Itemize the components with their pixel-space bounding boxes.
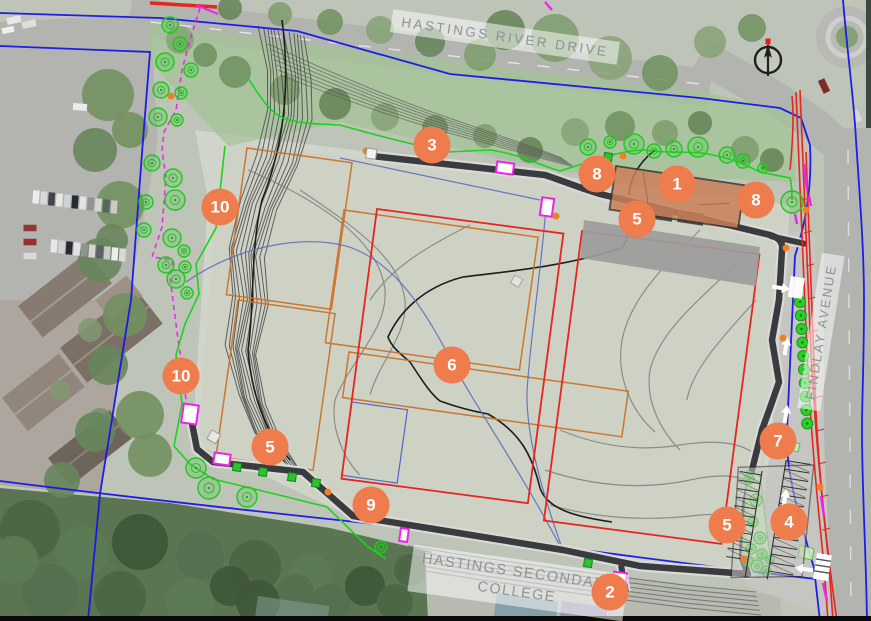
marker-2: 2 xyxy=(592,574,629,611)
marker-9: 9 xyxy=(353,487,390,524)
path-endcap xyxy=(366,148,377,159)
marker-1: 1 xyxy=(659,166,696,203)
image-edge-right xyxy=(866,0,871,128)
marker-5: 5 xyxy=(619,201,656,238)
marker-4: 4 xyxy=(771,504,808,541)
marker-8: 8 xyxy=(579,156,616,193)
marker-5: 5 xyxy=(252,429,289,466)
image-border-bottom xyxy=(0,616,871,621)
marker-10: 10 xyxy=(163,358,200,395)
marker-8: 8 xyxy=(738,182,775,219)
marker-5: 5 xyxy=(709,507,746,544)
site-plan: HASTINGS RIVER DRIVE FINDLAY AVENUE HAST… xyxy=(0,0,871,621)
marker-6: 6 xyxy=(434,347,471,384)
marker-3: 3 xyxy=(414,127,451,164)
marker-7: 7 xyxy=(760,423,797,460)
marker-10: 10 xyxy=(202,189,239,226)
